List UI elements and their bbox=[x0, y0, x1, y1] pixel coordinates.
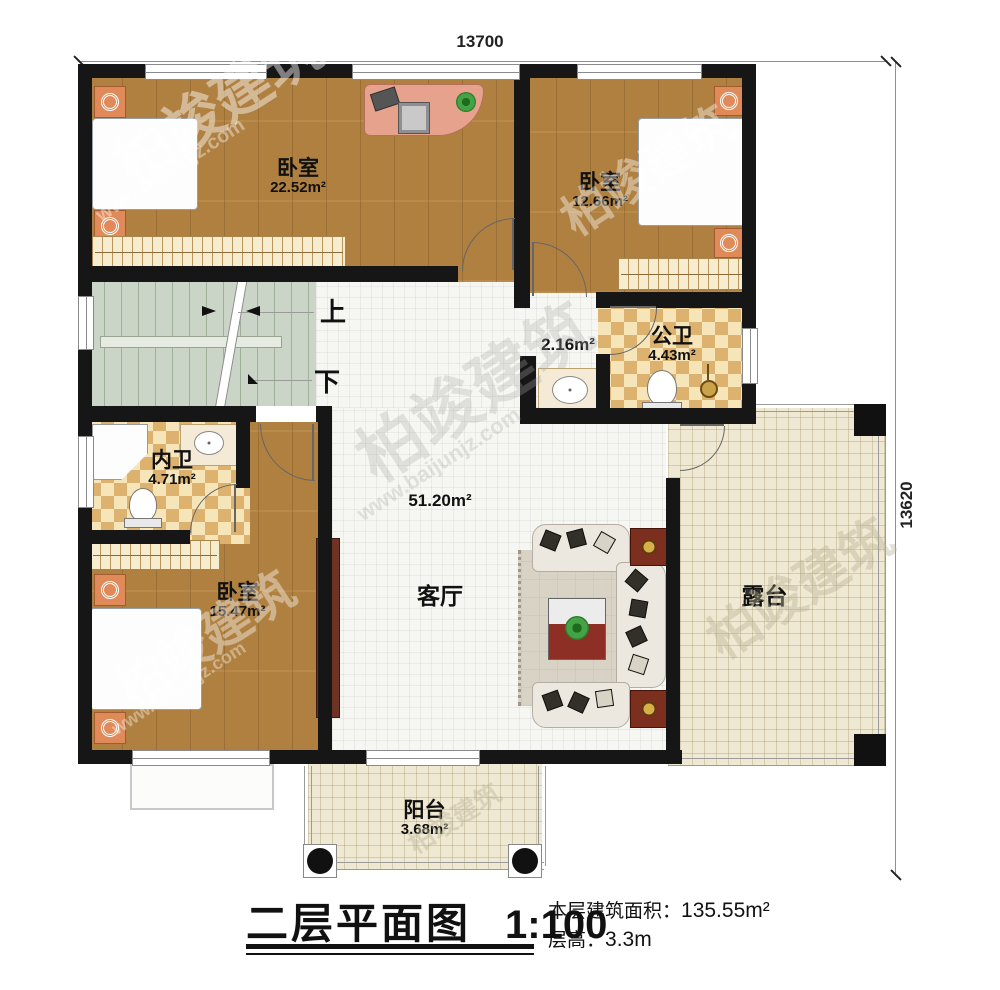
dimension-right: 13620 bbox=[897, 460, 917, 550]
wall bbox=[520, 356, 536, 408]
wall bbox=[666, 478, 680, 754]
floor-height-value: 3.3m bbox=[605, 928, 652, 951]
room-area: 3.68m² bbox=[362, 822, 487, 838]
wall bbox=[596, 354, 610, 408]
room-label-public-bath: 公卫 4.43m² bbox=[614, 326, 730, 364]
balcony-column-right bbox=[508, 844, 542, 878]
terrace-railing-right bbox=[878, 408, 886, 760]
room-label-bedroom3: 卧室 15.47m² bbox=[165, 582, 310, 620]
nightstand-icon bbox=[714, 86, 744, 116]
cushion-icon bbox=[629, 599, 649, 619]
washbasin-icon bbox=[552, 376, 588, 404]
dimension-top: 13700 bbox=[430, 32, 530, 52]
window bbox=[145, 64, 267, 80]
room-label-hall: 2.16m² bbox=[518, 336, 618, 354]
floor-height-label: 层高： bbox=[548, 930, 605, 951]
plant-icon bbox=[456, 92, 476, 112]
terrace-railing-top bbox=[756, 404, 864, 412]
door-leaf bbox=[610, 306, 656, 308]
computer-icon bbox=[398, 102, 430, 134]
wardrobe-icon bbox=[92, 236, 346, 268]
floor-area-label: 本层建筑面积： bbox=[548, 901, 681, 922]
stair-arrow-icon bbox=[202, 306, 216, 316]
room-name: 卧室 bbox=[228, 158, 368, 180]
room-label-terrace: 露台 bbox=[702, 584, 827, 608]
title-underline bbox=[246, 944, 534, 949]
side-table-icon bbox=[630, 528, 668, 566]
floor-height-info: 层高：3.3m bbox=[548, 925, 652, 952]
room-area: 12.66m² bbox=[540, 194, 660, 210]
side-table-icon bbox=[630, 690, 668, 728]
nightstand-icon bbox=[94, 574, 126, 606]
room-label-living: 客厅 bbox=[385, 584, 495, 608]
room-name: 公卫 bbox=[614, 326, 730, 348]
cushion-icon bbox=[595, 689, 614, 708]
porch bbox=[130, 764, 274, 810]
room-label-ensuite: 内卫 4.71m² bbox=[110, 450, 234, 488]
door-leaf bbox=[234, 484, 236, 532]
room-name: 卧室 bbox=[165, 582, 310, 604]
toilet-icon bbox=[129, 488, 157, 522]
dimension-tick bbox=[890, 869, 901, 880]
wall bbox=[318, 422, 332, 752]
room-name: 内卫 bbox=[110, 450, 234, 472]
wall bbox=[520, 408, 756, 424]
room-area: 51.20m² bbox=[385, 492, 495, 510]
bed-icon bbox=[90, 608, 202, 710]
sliding-door-window bbox=[366, 750, 480, 766]
stair-up-label: 上 bbox=[320, 292, 346, 329]
wardrobe-icon bbox=[90, 540, 220, 570]
dimension-tick bbox=[890, 56, 901, 67]
room-label-living-area: 51.20m² bbox=[385, 492, 495, 510]
floor-area-value: 135.55m² bbox=[681, 899, 770, 922]
wall bbox=[236, 422, 250, 488]
window bbox=[352, 64, 520, 80]
wall bbox=[88, 530, 190, 544]
window bbox=[132, 750, 270, 766]
plant-icon bbox=[565, 616, 589, 640]
room-name: 阳台 bbox=[362, 800, 487, 822]
nightstand-icon bbox=[714, 228, 744, 258]
door-leaf bbox=[532, 242, 534, 296]
window bbox=[742, 328, 758, 384]
bed-icon bbox=[92, 118, 198, 210]
door-leaf bbox=[680, 424, 724, 426]
wardrobe-icon bbox=[618, 258, 746, 290]
room-area: 22.52m² bbox=[228, 180, 368, 196]
wall bbox=[78, 406, 256, 422]
balcony-column-left bbox=[303, 844, 337, 878]
stair-down-line bbox=[252, 380, 312, 381]
wall bbox=[316, 406, 332, 422]
nightstand-icon bbox=[94, 712, 126, 744]
room-label-bedroom2: 卧室 12.66m² bbox=[540, 172, 660, 210]
room-area: 4.43m² bbox=[614, 348, 730, 364]
toilet-tank-icon bbox=[124, 518, 162, 528]
shower-head-icon bbox=[700, 380, 718, 398]
door-leaf bbox=[312, 424, 314, 480]
window bbox=[577, 64, 702, 80]
wall bbox=[514, 64, 530, 308]
plan-title: 二层平面图 bbox=[246, 890, 471, 951]
floor-plan-page: { "title_block": { "title": "二层平面图", "sc… bbox=[0, 0, 1000, 990]
toilet-icon bbox=[647, 370, 677, 406]
terrace-column-ne bbox=[854, 404, 886, 436]
dimension-line-right bbox=[895, 62, 896, 876]
room-name: 卧室 bbox=[540, 172, 660, 194]
room-area: 2.16m² bbox=[518, 336, 618, 354]
dimension-line-top bbox=[78, 61, 886, 62]
wall bbox=[88, 266, 458, 282]
title-underline-thin bbox=[246, 953, 534, 955]
room-label-balcony: 阳台 3.68m² bbox=[362, 800, 487, 838]
room-label-bedroom1: 卧室 22.52m² bbox=[228, 158, 368, 196]
stair-handrail bbox=[100, 336, 282, 348]
door-leaf bbox=[512, 218, 514, 270]
nightstand-icon bbox=[94, 86, 126, 118]
room-name: 客厅 bbox=[385, 584, 495, 608]
stair-down-label: 下 bbox=[314, 362, 340, 399]
room-name: 露台 bbox=[702, 584, 827, 608]
terrace-column-se bbox=[854, 734, 886, 766]
window bbox=[78, 436, 94, 508]
shower-stem-icon bbox=[707, 364, 709, 380]
floor-area-info: 本层建筑面积：135.55m² bbox=[548, 896, 770, 923]
window bbox=[78, 296, 94, 350]
stair-arrow-icon bbox=[248, 374, 258, 384]
room-area: 15.47m² bbox=[165, 604, 310, 620]
room-area: 4.71m² bbox=[110, 472, 234, 488]
stair-arrow-icon bbox=[246, 306, 260, 316]
